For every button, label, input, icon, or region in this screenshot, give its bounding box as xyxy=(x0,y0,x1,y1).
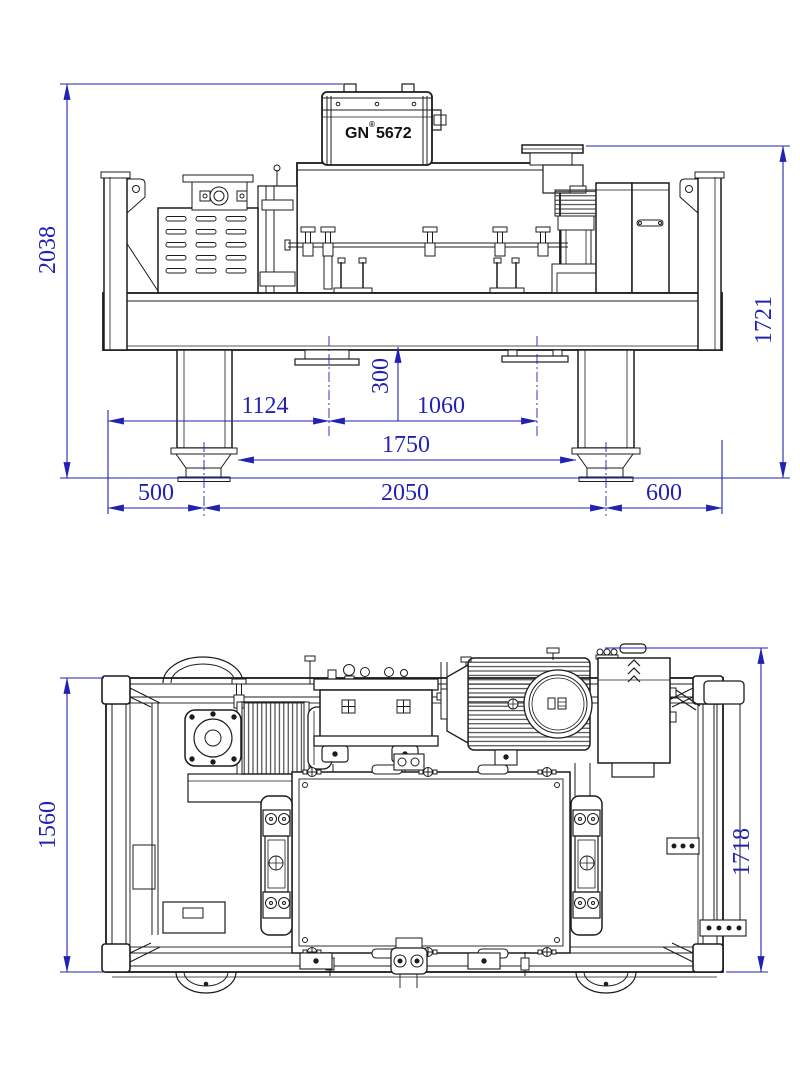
dim-inlet-top-height: 1721 xyxy=(751,296,777,344)
solids-discharge-chute xyxy=(295,350,359,365)
dim-overall-height: 2038 xyxy=(35,226,61,274)
dim-underframe-offset: 300 xyxy=(368,358,394,394)
gearbox-cover xyxy=(258,165,297,293)
dim-overall-width: 1718 xyxy=(729,828,755,876)
top-damper xyxy=(183,175,253,210)
registered-mark: ® xyxy=(369,120,375,129)
liquid-discharge-flange xyxy=(502,350,568,362)
dim-right-foot-offset: 600 xyxy=(646,480,682,506)
front-elevation-view: GN ® 5672 xyxy=(101,84,724,482)
foot-arcs xyxy=(176,972,636,993)
casing-opening xyxy=(292,763,590,976)
dim-foot-inner-span: 1750 xyxy=(382,432,430,458)
right-lug-assembly xyxy=(667,681,746,936)
dim-left-foot-offset: 500 xyxy=(138,480,174,506)
technical-drawing: GN ® 5672 2038 1721 300 1124 1 xyxy=(0,0,800,1074)
louver-cover xyxy=(158,208,258,293)
right-isolator xyxy=(571,796,602,935)
electrical-panel xyxy=(596,644,700,777)
left-isolator xyxy=(261,796,292,935)
belt-guard-arc xyxy=(163,657,243,683)
model-text: 5672 xyxy=(376,125,412,142)
dim-left-to-solids-outlet: 1124 xyxy=(241,393,288,419)
plan-view xyxy=(102,644,746,993)
main-motor-front xyxy=(596,183,669,293)
dim-solids-to-liquid-outlet: 1060 xyxy=(417,393,465,419)
drawing-sheet: GN ® 5672 2038 1721 300 1124 1 xyxy=(0,0,800,1074)
dim-frame-width: 1560 xyxy=(35,801,61,849)
dim-foot-center-span: 2050 xyxy=(381,480,429,506)
main-motor-plan xyxy=(441,648,592,765)
brand-text: GN xyxy=(345,125,369,142)
